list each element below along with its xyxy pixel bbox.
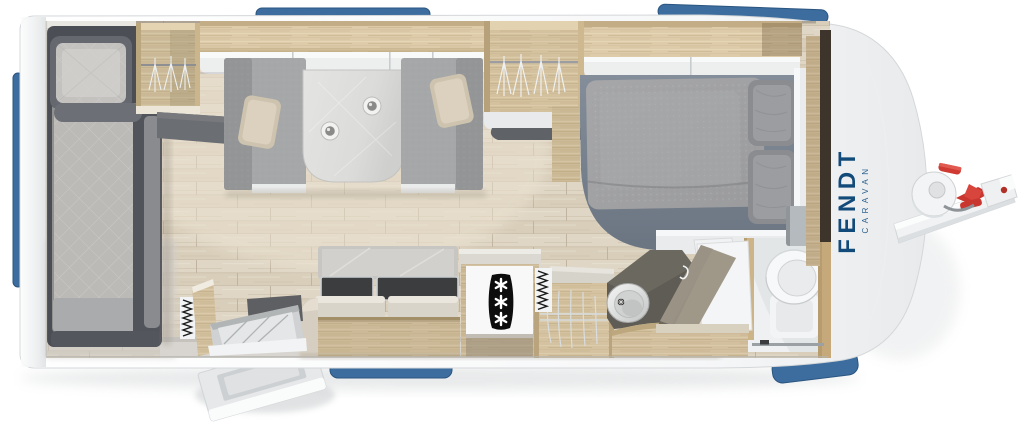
svg-text:CARAVAN: CARAVAN bbox=[861, 165, 870, 234]
svg-text:FENDT: FENDT bbox=[834, 146, 861, 254]
